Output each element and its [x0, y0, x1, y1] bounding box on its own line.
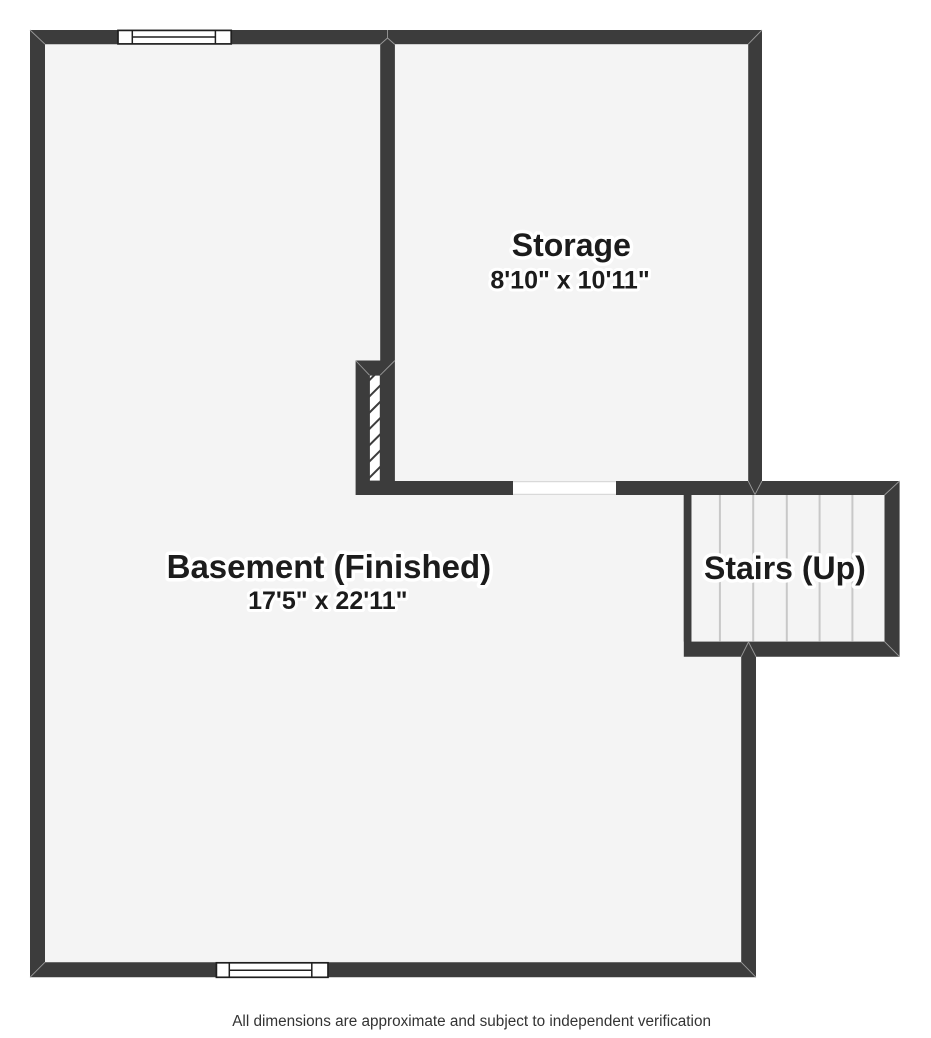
svg-text:Basement (Finished): Basement (Finished): [167, 548, 492, 585]
svg-text:All dimensions are approximate: All dimensions are approximate and subje…: [232, 1013, 711, 1030]
svg-text:Storage: Storage: [512, 227, 631, 263]
svg-text:17'5" x 22'11": 17'5" x 22'11": [248, 587, 407, 615]
svg-text:Stairs (Up): Stairs (Up): [704, 550, 866, 586]
svg-text:8'10" x 10'11": 8'10" x 10'11": [490, 266, 649, 294]
